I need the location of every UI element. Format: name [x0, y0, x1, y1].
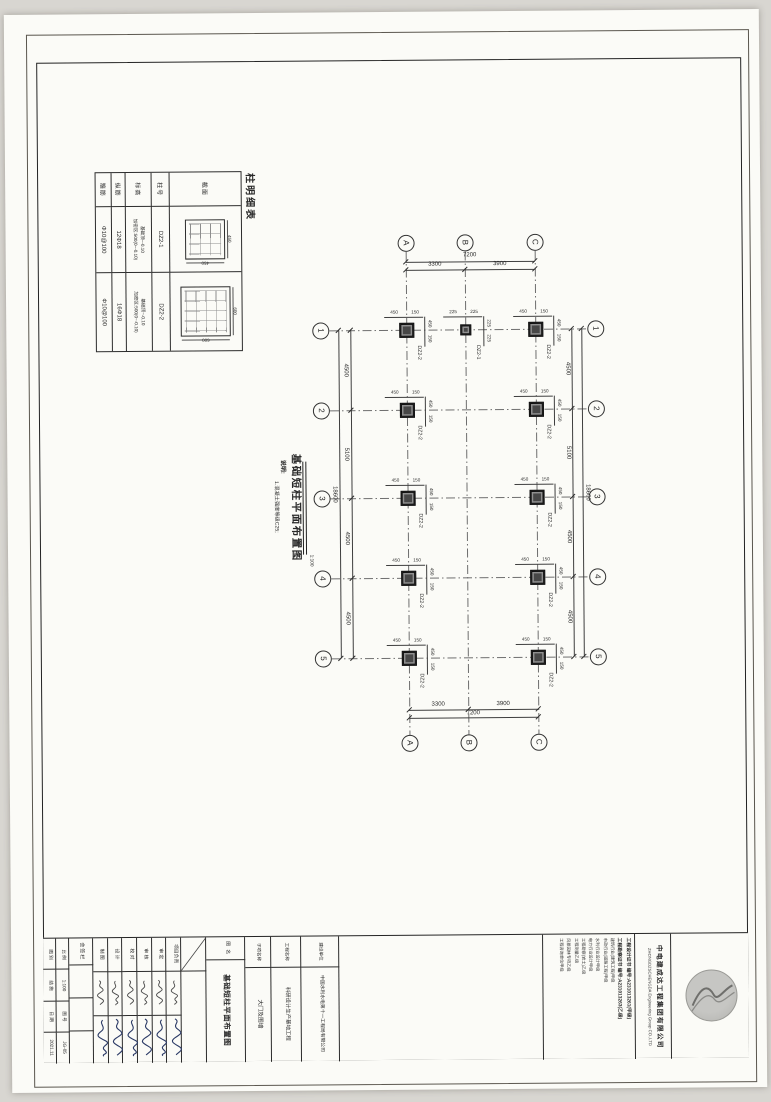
- info-cell: 日 期: [44, 1001, 57, 1032]
- dimension-text: 450: [519, 310, 527, 315]
- signature-column: 审 定: [152, 938, 168, 1063]
- handwritten-signature: [108, 1017, 124, 1059]
- subproject-value: 大门及围墙: [256, 999, 262, 1028]
- column-dim-line: [443, 316, 482, 317]
- grid-bubble: 4: [314, 570, 331, 587]
- column-marker-C3: [529, 489, 544, 504]
- signature-role-label: 校 对: [127, 949, 132, 960]
- grid-bubble: B: [460, 734, 477, 751]
- cell-divider: [152, 1015, 167, 1016]
- grid-axis-line-horizontal: [332, 656, 590, 659]
- grid-bubble: A: [401, 734, 418, 751]
- column-dim-line: [553, 316, 554, 346]
- dimension-text: 150: [428, 503, 433, 511]
- column-label: DZ2-2: [546, 512, 551, 526]
- qualification-line: 工程测量乙级: [573, 937, 580, 1056]
- logo-wave-icon: [686, 970, 737, 1021]
- grid-bubble-label: 3: [318, 496, 326, 501]
- grid-bubble-label: B: [461, 240, 469, 245]
- column-marker-A2: [399, 402, 414, 417]
- grid-bubble-label: 3: [593, 494, 601, 499]
- grid-bubble-label: B: [464, 740, 472, 745]
- column-dim-line: [387, 645, 426, 646]
- column-label: DZ2-2: [416, 426, 421, 440]
- info-cell: 2021.11: [44, 1032, 57, 1063]
- signature-role-label: 设 计: [113, 949, 118, 960]
- dimension-text: 150: [540, 309, 548, 314]
- plan-scale: 1:100: [308, 555, 313, 567]
- dimension-text: 450: [558, 647, 563, 655]
- grid-bubble: 3: [313, 490, 330, 507]
- column-marker-A4: [401, 570, 416, 585]
- dimension-text: 450: [521, 558, 529, 563]
- dimension-text: 450: [391, 391, 399, 396]
- credentials-text: 工程设计证书 编号:A231013261(甲级)工程勘察证书 编号:A23101…: [546, 937, 633, 1057]
- cell-divider: [94, 1015, 109, 1016]
- dimension-text: 4500: [344, 612, 350, 625]
- dimension-text: 150: [413, 478, 421, 483]
- dimension-text: 450: [428, 488, 433, 496]
- column-dim-line: [385, 485, 424, 486]
- cell-divider: [108, 971, 123, 972]
- info-cell: JG-05: [57, 1032, 70, 1063]
- grid-bubble: B: [456, 234, 473, 251]
- dimension-text: 150: [430, 663, 435, 671]
- titleblock-signatures: 制 图设 计校 对审 核审 定项目负责: [93, 938, 182, 1064]
- column-label: DZ2-2: [547, 672, 552, 686]
- grid-bubble-label: C: [534, 739, 542, 745]
- column-dim-line: [384, 317, 423, 318]
- column-marker-A1: [399, 322, 414, 337]
- qualification-line: 电力行业设计甲级: [587, 937, 594, 1056]
- column-dim-line: [554, 396, 555, 426]
- column-dim-line: [515, 564, 554, 565]
- dimension-text: 4500: [565, 362, 571, 375]
- titleblock-credentials: 工程设计证书 编号:A231013261(甲级)工程勘察证书 编号:A23101…: [543, 934, 636, 1060]
- grid-bubble-label: 4: [593, 574, 601, 579]
- company-logo: [685, 969, 737, 1021]
- dimension-text: 4500: [343, 364, 349, 377]
- info-cell-text: 图 别: [47, 949, 52, 960]
- dimension-text: 150: [559, 662, 564, 670]
- dimension-text: 150: [556, 334, 561, 342]
- grid-bubble: 2: [312, 402, 329, 419]
- cell-divider: [123, 971, 138, 972]
- signature-role-label: 审 核: [142, 948, 147, 959]
- dimension-text: 450: [521, 478, 529, 483]
- column-dim-line: [425, 397, 426, 427]
- column-dim-line: [555, 564, 556, 594]
- dimension-text: 225: [449, 310, 457, 315]
- project-value: 科研设计生产基地工程: [284, 987, 290, 1041]
- grid-axis-line-horizontal: [330, 408, 588, 411]
- dimension-text: 150: [557, 502, 562, 510]
- drawing-name-value: 基础短柱平面布置图: [222, 974, 230, 1046]
- qualification-line: 工程勘察(岩土)乙级: [580, 937, 587, 1056]
- column-dim-line: [514, 396, 553, 397]
- company-name-en: ZHONGDZSCHENGDA Engineering Group CO.,LT…: [647, 937, 653, 1056]
- info-cell-text: JG-05: [61, 1042, 66, 1055]
- dimension-text: 150: [414, 638, 422, 643]
- titleblock-company: 中电建成达工程集团有限公司 ZHONGDZSCHENGDA Engineerin…: [635, 934, 672, 1059]
- grid-axis-line-horizontal: [331, 576, 589, 579]
- dimension-text: 225: [470, 310, 478, 315]
- column-label: DZ2-2: [418, 673, 423, 687]
- info-cell: 图 别: [43, 939, 56, 970]
- qualification-line: 风景园林专项乙级: [565, 938, 572, 1057]
- dimension-text: 450: [556, 319, 561, 327]
- handwritten-signature: [166, 1017, 182, 1059]
- signature-role-label: 项目负责: [171, 944, 176, 963]
- dimension-text: 7200: [467, 710, 480, 716]
- column-dim-line: [514, 484, 553, 485]
- dimension-line: [409, 717, 538, 719]
- column-marker-A5: [401, 650, 416, 665]
- diagonal-line: [181, 937, 206, 970]
- grid-bubble-label: C: [531, 239, 539, 245]
- info-cell: 比 例: [56, 938, 69, 969]
- certificate-line: 工程设计证书 编号:A231013261(甲级): [625, 937, 633, 1056]
- titleblock-diagonal-cell: [181, 937, 207, 1062]
- plan-title: 基础短柱平面布置图: [290, 454, 301, 562]
- cell-divider: [137, 971, 152, 972]
- column-dim-line: [483, 316, 484, 346]
- column-dim-line: [425, 485, 426, 515]
- dimension-text: 5100: [565, 446, 571, 459]
- grid-bubble-label: A: [405, 740, 413, 745]
- signature-column: 项目负责: [166, 938, 182, 1063]
- dimension-text: 3900: [493, 261, 506, 267]
- info-cell-text: 日 期: [48, 1011, 53, 1022]
- signature-column: 设 计: [108, 938, 124, 1063]
- info-cell: 1:100: [56, 970, 69, 1001]
- qualification-line: 水利行业设计甲级: [594, 937, 601, 1056]
- qualification-line: 市政行业(道路工程)甲级: [602, 937, 609, 1056]
- cell-divider: [138, 1015, 153, 1016]
- titleblock-logo-cell: [671, 933, 749, 1059]
- dimension-text: 450: [390, 311, 398, 316]
- certificate-line: 工程勘察证书 编号:A231013263(乙级): [617, 937, 625, 1056]
- dimension-text: 7200: [463, 252, 476, 258]
- column-label: DZ2-2: [417, 513, 422, 527]
- dimension-text: 450: [392, 559, 400, 564]
- grid-bubble: C: [530, 733, 547, 750]
- titleblock-drawing-name: 图 名 基础短柱平面布置图: [206, 937, 246, 1062]
- printed-name: [107, 979, 123, 1007]
- column-marker-C2: [528, 401, 543, 416]
- dimension-text: 4500: [566, 610, 572, 623]
- column-marker-B1: [460, 324, 471, 335]
- plan-note: 1.混凝土强度等级C25;: [273, 481, 279, 533]
- dimension-text: 150: [558, 582, 563, 590]
- cell-divider: [108, 1015, 123, 1016]
- column-dim-line: [513, 316, 552, 317]
- cell-divider: [123, 1015, 138, 1016]
- signature-role-label: 审 定: [157, 948, 162, 959]
- info-cell-text: 1:100: [61, 980, 66, 992]
- dimension-text: 450: [558, 567, 563, 575]
- printed-name: [166, 979, 182, 1007]
- dimension-text: 150: [427, 335, 432, 343]
- scanned-drawing-sheet: 柱明细表 截面 450 450 600 600: [0, 0, 771, 1102]
- signature-role-label: 制 图: [98, 949, 103, 960]
- column-dim-line: [424, 317, 425, 347]
- grid-bubble-label: A: [402, 240, 410, 245]
- dimension-text: 225: [486, 334, 491, 342]
- grid-bubble-label: 1: [591, 326, 599, 331]
- dimension-line: [338, 330, 341, 658]
- titleblock-empty-cell: [339, 935, 544, 1062]
- qualification-line: 工程咨询单位甲级: [558, 938, 565, 1057]
- grid-bubble: 5: [314, 650, 331, 667]
- plan-note-label: 说明:: [279, 460, 285, 474]
- dimension-text: 150: [541, 389, 549, 394]
- dimension-text: 450: [557, 399, 562, 407]
- dimension-text: 150: [542, 477, 550, 482]
- column-label: DZ2-2: [545, 424, 550, 438]
- dimension-text: 150: [429, 583, 434, 591]
- dimension-text: 5100: [343, 448, 349, 461]
- dimension-line: [406, 269, 535, 271]
- dimension-text: 450: [427, 320, 432, 328]
- info-cell-text: 比 例: [60, 949, 65, 960]
- grid-bubble: 4: [589, 568, 606, 585]
- subproject-label: 子项名称: [256, 943, 261, 961]
- info-cell-text: 图 号: [61, 1011, 66, 1022]
- dimension-text: 3300: [428, 262, 441, 268]
- column-marker-C4: [530, 569, 545, 584]
- grid-bubble-label: 5: [594, 654, 602, 659]
- company-name-cn: 中电建成达工程集团有限公司: [655, 937, 666, 1056]
- signature-column: 制 图: [93, 938, 109, 1063]
- info-cell-text: 2021.11: [48, 1040, 53, 1056]
- cell-divider: [167, 1015, 182, 1016]
- dimension-text: 3300: [432, 702, 445, 708]
- grid-bubble: 5: [589, 648, 606, 665]
- column-marker-C1: [528, 321, 543, 336]
- titleblock-subproject: 子项名称 大门及围墙: [245, 937, 272, 1062]
- titleblock-signoff-column: 会签栏: [69, 938, 94, 1063]
- column-label: DZ2-1: [475, 345, 480, 359]
- grid-bubble: 1: [587, 320, 604, 337]
- grid-bubble: C: [526, 233, 543, 250]
- grid-bubble-label: 2: [317, 408, 325, 413]
- grid-bubble-label: 4: [318, 576, 326, 581]
- column-dim-line: [426, 565, 427, 595]
- column-label: DZ2-2: [418, 593, 423, 607]
- dimension-text: 150: [543, 637, 551, 642]
- dimension-text: 450: [392, 479, 400, 484]
- column-dim-line: [556, 644, 557, 674]
- dimension-text: 150: [412, 390, 420, 395]
- grid-bubble: 2: [587, 400, 604, 417]
- grid-bubble: A: [397, 234, 414, 251]
- cell-divider: [93, 971, 108, 972]
- dimension-text: 4500: [566, 530, 572, 543]
- dimension-text: 450: [557, 487, 562, 495]
- column-marker-A3: [400, 490, 415, 505]
- dimension-text: 450: [428, 400, 433, 408]
- client-value: 中国水利水电第十一工程局有限公司: [318, 975, 323, 1052]
- dimension-text: 225: [486, 319, 491, 327]
- dimension-text: 450: [429, 568, 434, 576]
- dimension-text: 450: [520, 390, 528, 395]
- signoff-label: 会签栏: [79, 942, 84, 960]
- info-cell-text: 结 施: [48, 980, 53, 991]
- qualification-line: 建筑行业(建筑工程)甲级: [609, 937, 616, 1056]
- title-block: 图 别结 施日 期2021.11比 例1:100图 号JG-05 会签栏 制 图…: [43, 932, 749, 1063]
- column-dim-line: [386, 565, 425, 566]
- grid-bubble-label: 5: [319, 656, 327, 661]
- grid-axis-line-horizontal: [329, 328, 587, 331]
- grid-bubble-label: 1: [316, 328, 324, 333]
- dimension-text: 150: [428, 415, 433, 423]
- info-cell: 结 施: [43, 970, 56, 1001]
- handwritten-signature: [152, 1017, 168, 1059]
- client-label: 建设单位: [318, 942, 323, 960]
- dimension-text: 3900: [497, 701, 510, 707]
- column-dim-line: [554, 484, 555, 514]
- project-label: 工程名称: [284, 943, 289, 961]
- signature-column: 审 核: [137, 938, 153, 1063]
- column-dim-line: [385, 397, 424, 398]
- grid-bubble: 1: [312, 322, 329, 339]
- dimension-text: 450: [429, 648, 434, 656]
- column-marker-C5: [530, 649, 545, 664]
- dimension-text: 150: [413, 558, 421, 563]
- dimension-text: 450: [522, 638, 530, 643]
- column-label: DZ2-2: [547, 592, 552, 606]
- cell-divider: [152, 971, 167, 972]
- column-dim-line: [516, 644, 555, 645]
- column-label: DZ2-2: [545, 344, 550, 358]
- dimension-text: 4500: [344, 532, 350, 545]
- titleblock-client: 建设单位 中国水利水电第十一工程局有限公司: [301, 936, 340, 1061]
- cell-divider: [167, 971, 182, 972]
- drawing-name-label: 图 名: [223, 941, 228, 955]
- dimension-text: 150: [557, 414, 562, 422]
- column-label: DZ2-2: [416, 346, 421, 360]
- dimension-text: 450: [393, 639, 401, 644]
- dimension-text: 150: [411, 310, 419, 315]
- printed-name: [151, 979, 167, 1007]
- grid-axis-line-horizontal: [331, 496, 589, 499]
- grid-bubble-label: 2: [592, 406, 600, 411]
- titleblock-project: 工程名称 科研设计生产基地工程: [271, 937, 302, 1062]
- dimension-text: 150: [542, 557, 550, 562]
- info-cell: 图 号: [57, 1001, 70, 1032]
- dimension-line: [406, 261, 535, 263]
- column-dim-line: [427, 645, 428, 675]
- titleblock-info-grid: 图 别结 施日 期2021.11比 例1:100图 号JG-05: [43, 938, 70, 1063]
- dimension-text: 18600: [584, 484, 590, 501]
- dimension-text: 18600: [332, 486, 338, 503]
